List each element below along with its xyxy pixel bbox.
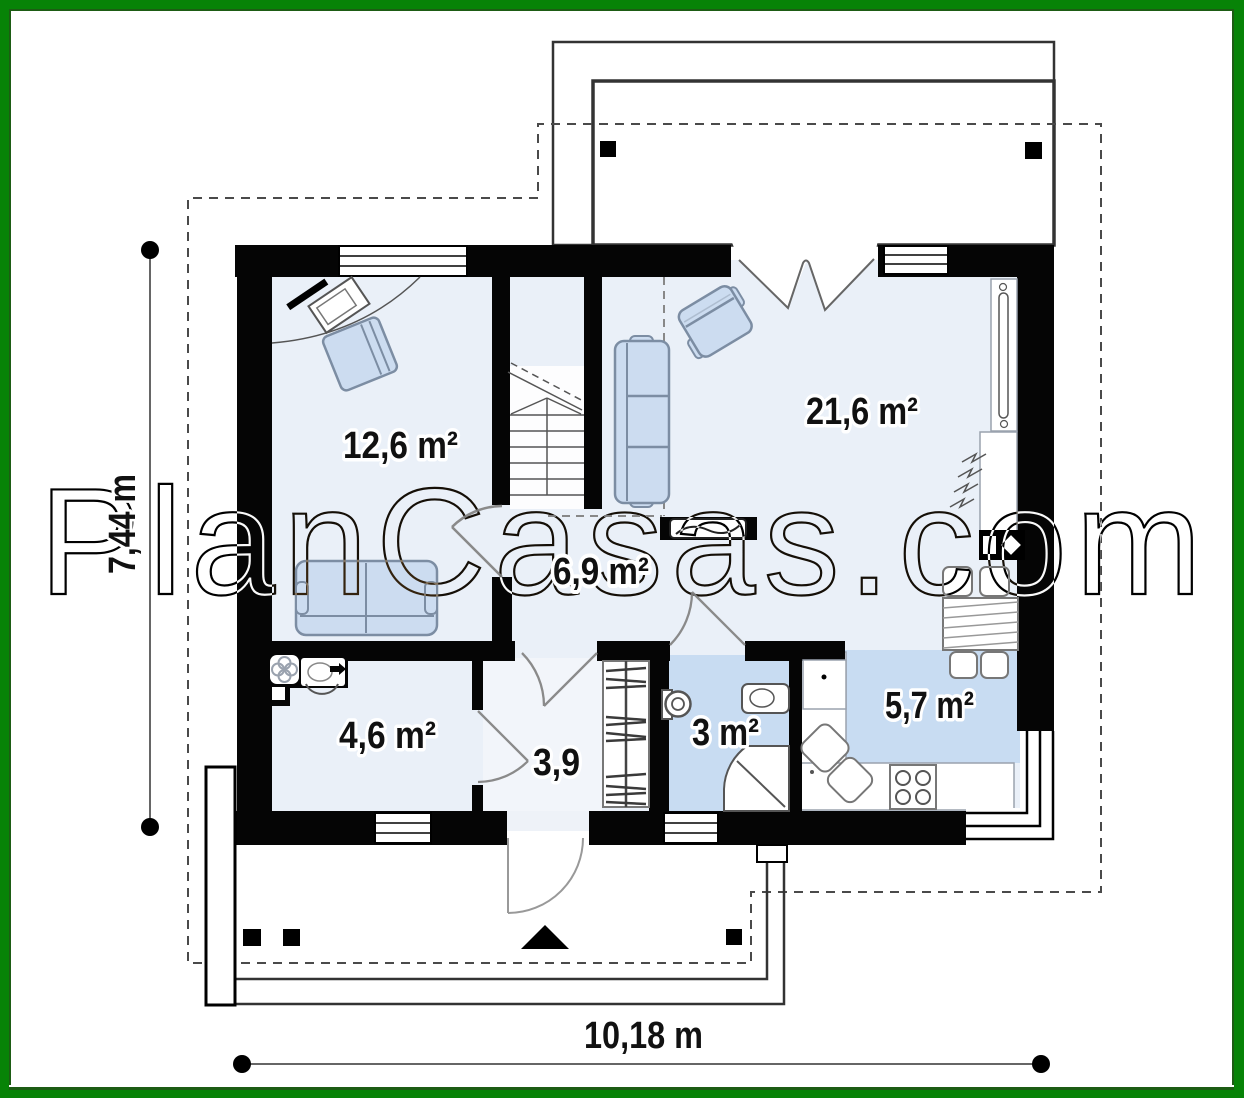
svg-text:21,6 m²: 21,6 m² [806, 391, 918, 433]
svg-text:3 m²: 3 m² [692, 712, 759, 754]
svg-text:3,9: 3,9 [533, 742, 580, 784]
svg-text:5,7 m²: 5,7 m² [885, 685, 974, 727]
svg-text:PlanCasas.com: PlanCasas.com [39, 457, 1210, 627]
svg-text:4,6 m²: 4,6 m² [339, 715, 436, 757]
svg-text:6,9 m²: 6,9 m² [553, 551, 649, 593]
svg-text:12,6 m²: 12,6 m² [343, 425, 458, 467]
svg-text:10,18 m: 10,18 m [584, 1015, 703, 1057]
svg-text:7,44 m: 7,44 m [102, 474, 144, 574]
